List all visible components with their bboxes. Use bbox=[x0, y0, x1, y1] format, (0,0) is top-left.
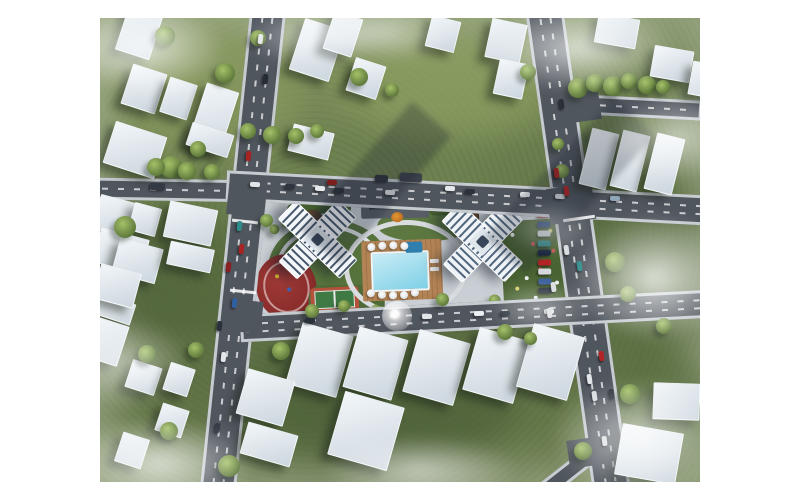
tree bbox=[338, 300, 350, 312]
page bbox=[0, 0, 800, 500]
tree bbox=[147, 158, 165, 176]
tree bbox=[310, 124, 324, 138]
tree bbox=[385, 83, 399, 97]
fog-patch bbox=[550, 378, 700, 482]
car bbox=[150, 183, 165, 190]
car bbox=[422, 314, 432, 320]
car bbox=[245, 151, 251, 161]
junction-patch bbox=[226, 176, 268, 218]
pool-umbrella bbox=[367, 289, 375, 297]
pool-umbrella bbox=[400, 291, 408, 299]
car bbox=[231, 298, 237, 308]
car bbox=[216, 321, 222, 331]
tree bbox=[272, 342, 290, 360]
car bbox=[220, 352, 226, 362]
fog-patch bbox=[100, 418, 255, 482]
car bbox=[327, 180, 337, 186]
tree bbox=[178, 162, 196, 180]
car bbox=[305, 318, 315, 324]
tree bbox=[350, 68, 368, 86]
tree bbox=[288, 128, 304, 144]
car bbox=[225, 262, 231, 272]
car bbox=[238, 244, 244, 254]
fog-patch bbox=[100, 318, 190, 408]
car bbox=[262, 74, 268, 84]
parked-car bbox=[538, 259, 551, 265]
sun-flare-core bbox=[390, 309, 400, 319]
fog-patch bbox=[305, 18, 455, 63]
fog-patch bbox=[610, 93, 700, 183]
pool-umbrella bbox=[378, 291, 386, 299]
tree bbox=[240, 123, 256, 139]
car bbox=[285, 184, 295, 190]
pool-umbrella bbox=[389, 291, 397, 299]
tree bbox=[436, 293, 449, 306]
tree bbox=[204, 164, 220, 180]
pool-umbrella bbox=[389, 241, 397, 249]
fog-patch bbox=[320, 435, 520, 482]
junction-patch bbox=[220, 298, 263, 334]
tree bbox=[263, 126, 281, 144]
tree bbox=[552, 138, 564, 150]
building bbox=[462, 327, 531, 404]
car bbox=[315, 186, 325, 192]
fog-patch bbox=[485, 280, 595, 336]
car bbox=[474, 311, 484, 317]
tree bbox=[188, 342, 204, 358]
tree bbox=[114, 216, 136, 238]
parked-car bbox=[538, 268, 551, 274]
car bbox=[465, 189, 475, 195]
car bbox=[250, 182, 260, 188]
car bbox=[445, 186, 455, 192]
pool-umbrella bbox=[411, 289, 419, 297]
car bbox=[236, 221, 242, 231]
tree bbox=[190, 141, 206, 157]
fog-patch bbox=[505, 200, 595, 256]
site-aerial-render bbox=[100, 18, 700, 482]
tree bbox=[305, 304, 319, 318]
fog-patch bbox=[480, 18, 680, 93]
swimming-pool bbox=[371, 250, 430, 292]
car bbox=[610, 196, 620, 202]
fog-patch bbox=[100, 18, 225, 93]
tree bbox=[260, 214, 273, 227]
